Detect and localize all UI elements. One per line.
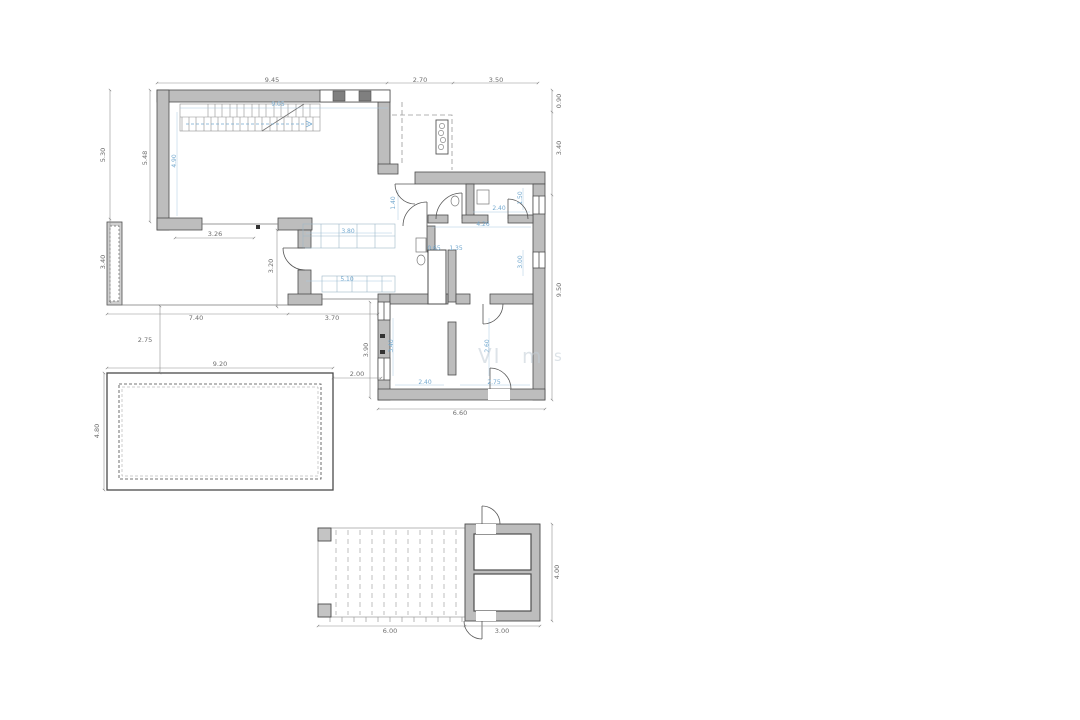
dimension-label: 2.40: [492, 206, 505, 212]
dimension-label: 5.10: [340, 277, 353, 283]
stair-direction-line: [186, 121, 312, 127]
dimension-label: 3.40: [100, 255, 107, 269]
dimension-label: 9.20: [213, 361, 227, 368]
dimension-label: 3.00: [518, 255, 524, 268]
dimension-label: 2.75: [487, 380, 500, 386]
terrace-wall: [107, 222, 288, 305]
dimension-label: 3.26: [208, 231, 222, 238]
wardrobe: [428, 250, 446, 304]
watermark-text: VI: [478, 344, 502, 368]
dimension-label: 3.90: [363, 343, 370, 357]
dimension-label: 4.00: [554, 565, 561, 579]
floor-plan-page: 9.452.703.500.903.409.505.303.405.482.75…: [0, 0, 1080, 720]
dimension-label: 9.50: [556, 283, 563, 297]
watermark-text: s: [554, 347, 564, 365]
dimension-label: 9.45: [265, 77, 279, 84]
dimension-label: 0.65: [427, 246, 440, 252]
dimension-label: 1.50: [518, 191, 524, 204]
dimension-label: 3.80: [341, 229, 354, 235]
dimension-label: 2.75: [138, 337, 152, 344]
storage-building: [464, 506, 540, 639]
interior-walls: [390, 184, 533, 375]
dimension-label: 7.40: [189, 315, 203, 322]
pool: [107, 373, 333, 490]
dimension-label: 4.26: [476, 222, 489, 228]
dimension-label: 1.40: [391, 196, 397, 209]
top-wall-windows: [320, 90, 390, 102]
dimension-label: 2.40: [418, 380, 431, 386]
dimension-label: 1.35: [449, 246, 462, 252]
dimension-label: 3.00: [495, 628, 509, 635]
watermark-text: m: [522, 344, 543, 368]
dimension-label: 3.20: [268, 259, 275, 273]
dimension-label: 4.90: [172, 154, 178, 167]
dimension-label: 3.40: [556, 141, 563, 155]
dimension-label: 2.00: [350, 371, 364, 378]
dimension-label: 4.80: [94, 424, 101, 438]
pergola-post: [318, 604, 331, 617]
dimension-label: 3.50: [489, 77, 503, 84]
thresholds: [202, 224, 378, 299]
dimension-label: 6.00: [383, 628, 397, 635]
dimension-label: 6.60: [453, 410, 467, 417]
stone-pillar: [436, 120, 448, 154]
dimension-label: 9.05: [271, 102, 284, 108]
dimension-label: 0.90: [556, 94, 563, 108]
dimension-label: 5.48: [142, 151, 149, 165]
dimension-label: 3.70: [325, 315, 339, 322]
pergola-deck: [318, 528, 465, 622]
dimension-label: 3.40: [389, 339, 395, 352]
dimension-label: 2.70: [413, 77, 427, 84]
bottom-door-gap: [488, 389, 510, 400]
dimension-label: 5.30: [100, 148, 107, 162]
pergola-post: [318, 528, 331, 541]
